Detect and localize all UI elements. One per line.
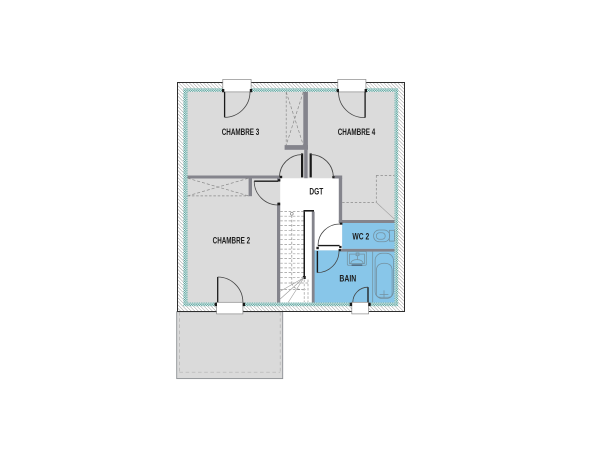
svg-text:CHAMBRE 2: CHAMBRE 2 [213,236,251,247]
svg-text:CHAMBRE 4: CHAMBRE 4 [338,127,376,138]
svg-text:WC 2: WC 2 [352,232,369,243]
svg-text:DGT: DGT [309,187,323,198]
svg-text:CHAMBRE 3: CHAMBRE 3 [222,127,260,138]
svg-text:BAIN: BAIN [339,274,356,285]
